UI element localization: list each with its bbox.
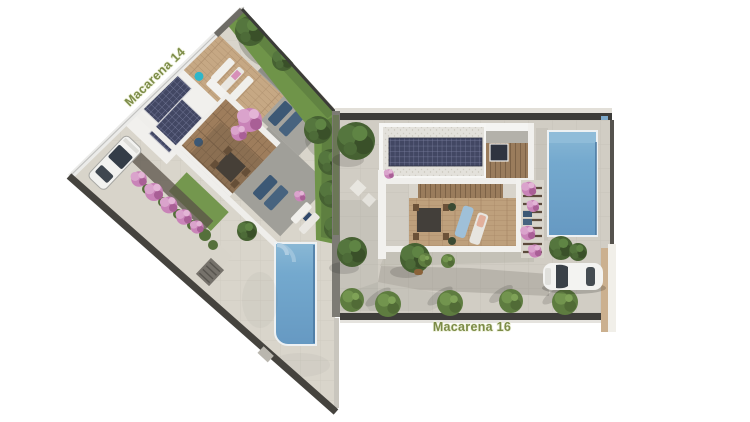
svg-text:Macarena 16: Macarena 16	[433, 320, 511, 334]
